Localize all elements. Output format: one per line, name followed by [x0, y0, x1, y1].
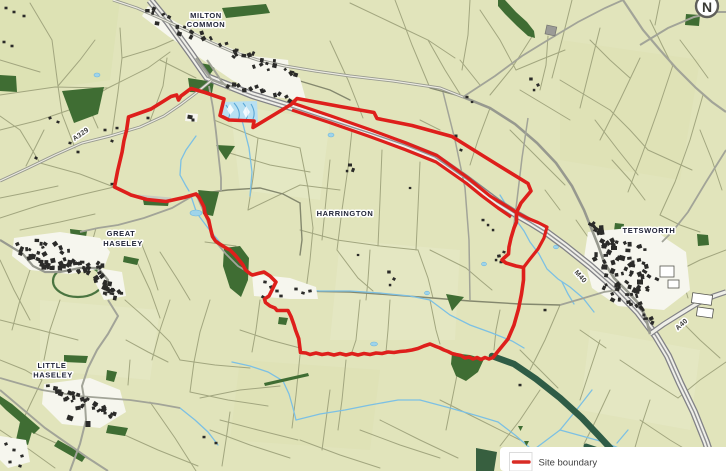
svg-text:COMMON: COMMON	[187, 20, 226, 29]
svg-text:Site boundary: Site boundary	[539, 458, 598, 469]
svg-text:TETSWORTH: TETSWORTH	[623, 226, 676, 235]
svg-text:N: N	[702, 0, 712, 15]
svg-text:LITTLE: LITTLE	[37, 361, 66, 370]
svg-text:GREAT: GREAT	[107, 229, 136, 238]
svg-text:MILTON: MILTON	[190, 11, 222, 20]
svg-text:HASELEY: HASELEY	[103, 239, 143, 248]
svg-text:HASELEY: HASELEY	[33, 371, 73, 380]
svg-text:HARRINGTON: HARRINGTON	[317, 209, 374, 218]
